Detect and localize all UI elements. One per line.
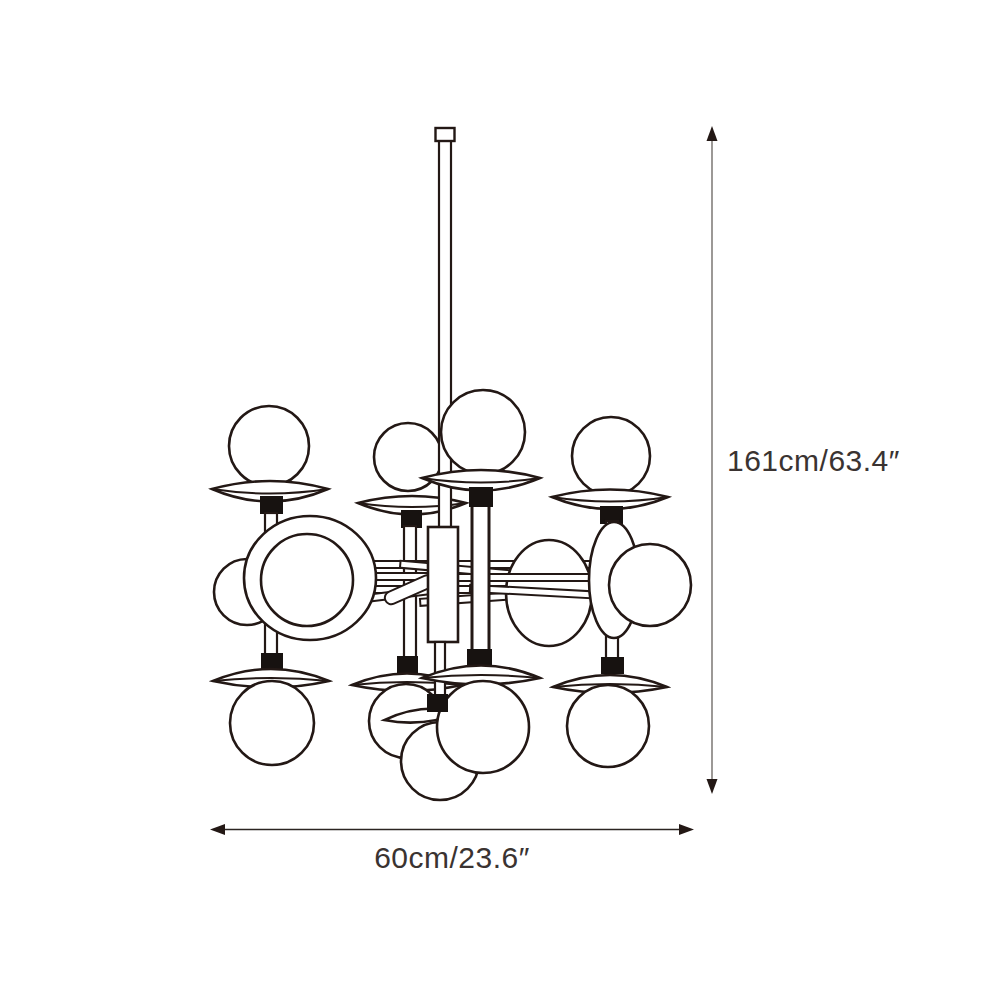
mid-tier-left-front bbox=[244, 516, 376, 640]
width-dimension bbox=[210, 824, 694, 835]
hanging-stem bbox=[436, 128, 455, 528]
width-dimension-label: 60cm/23.6″ bbox=[202, 841, 702, 875]
height-dimension bbox=[707, 126, 718, 794]
height-dimension-label: 161cm/63.4″ bbox=[727, 444, 900, 478]
glass-globe bbox=[437, 681, 529, 773]
diagram-canvas: 161cm/63.4″ 60cm/23.6″ bbox=[0, 0, 1000, 1000]
lamp-socket bbox=[427, 694, 448, 712]
mid-tier-right bbox=[456, 522, 691, 646]
ceiling-stub bbox=[436, 128, 455, 141]
